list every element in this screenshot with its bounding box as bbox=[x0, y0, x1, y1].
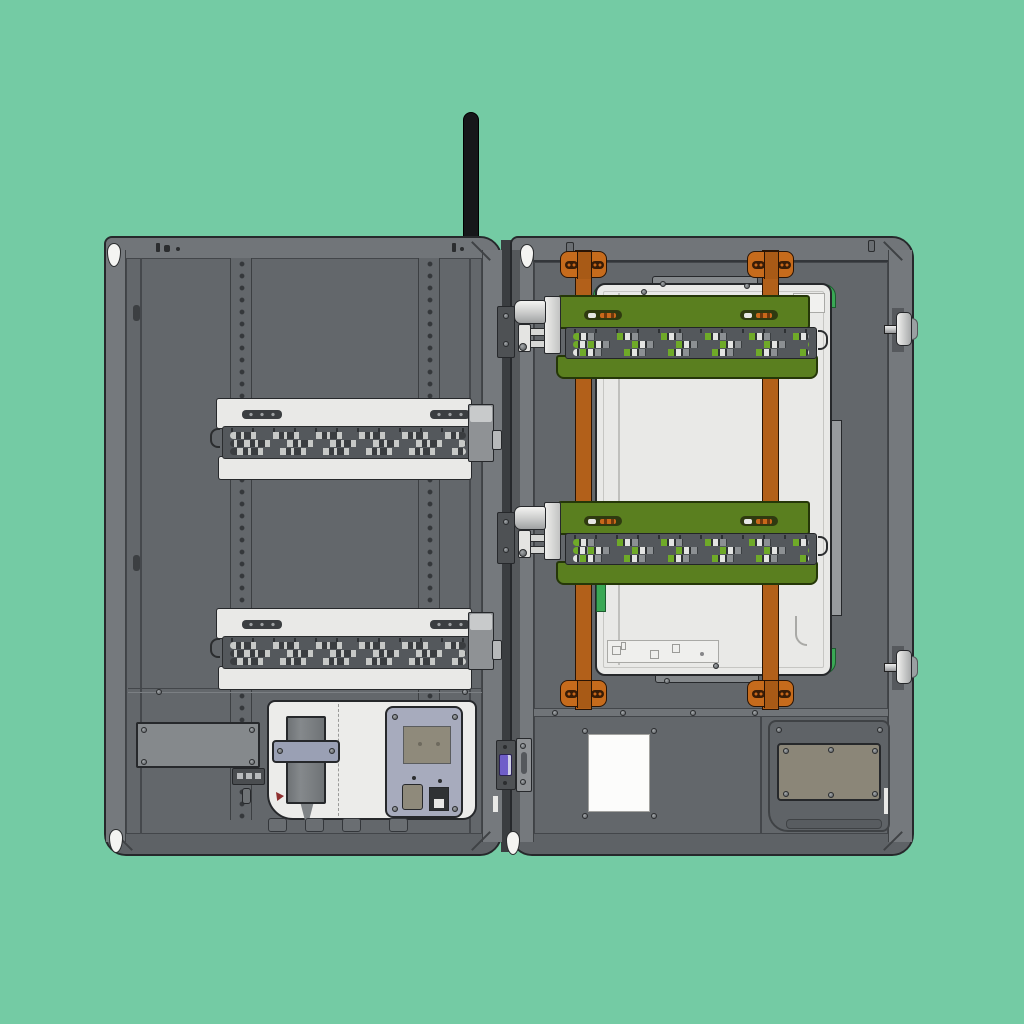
subpanel-seam bbox=[760, 717, 762, 833]
module-wiring-band bbox=[565, 533, 817, 565]
bracket-rail-cover bbox=[577, 252, 592, 279]
right-door-bottom-rail bbox=[512, 832, 912, 854]
panel-curve-line bbox=[795, 616, 807, 646]
screw bbox=[872, 791, 878, 797]
rail-mark-dot bbox=[176, 247, 180, 251]
screw bbox=[141, 727, 147, 733]
terminal-block-bottom-plate bbox=[218, 456, 472, 480]
block-end-stub bbox=[492, 640, 502, 660]
label-dot bbox=[418, 742, 422, 746]
screw bbox=[503, 341, 509, 347]
rail-bracket bbox=[560, 251, 607, 278]
screw bbox=[828, 747, 834, 753]
rail-bracket-outline bbox=[389, 818, 408, 832]
screw bbox=[392, 714, 398, 720]
latch-body bbox=[896, 650, 912, 684]
terminal-row bbox=[573, 547, 809, 554]
module-slot bbox=[740, 310, 778, 320]
terminal-row bbox=[573, 333, 809, 340]
terminal-row bbox=[573, 539, 809, 546]
rail-mark bbox=[156, 243, 160, 252]
screw bbox=[452, 806, 458, 812]
screw bbox=[156, 689, 162, 695]
keeper-slot bbox=[521, 752, 527, 774]
screw bbox=[752, 710, 758, 716]
rail-mark bbox=[164, 245, 170, 252]
screw bbox=[249, 759, 255, 765]
terminal-strip-pole bbox=[255, 773, 261, 779]
latch-arm-screw bbox=[519, 343, 527, 351]
mount-slot bbox=[430, 410, 470, 419]
latch-cylinder bbox=[514, 300, 546, 324]
rj45-inner bbox=[434, 799, 444, 808]
rail-bracket bbox=[560, 680, 607, 707]
pcb-feature bbox=[612, 646, 621, 655]
rail-bracket-outline bbox=[305, 818, 324, 832]
screw bbox=[520, 743, 526, 749]
latch-arm-screw bbox=[519, 549, 527, 557]
module-slot bbox=[584, 310, 622, 320]
pcb-feature bbox=[672, 644, 680, 653]
label-card bbox=[588, 734, 650, 812]
block-end-connector-cap bbox=[470, 614, 492, 630]
latch-bar bbox=[530, 340, 545, 348]
controller-port-a bbox=[402, 784, 423, 810]
screw bbox=[690, 710, 696, 716]
terminal-strip-pole bbox=[237, 773, 243, 779]
wire-hook bbox=[210, 428, 220, 448]
module-slot bbox=[584, 516, 622, 526]
rail-bracket-outline bbox=[268, 818, 287, 832]
rail-bracket bbox=[747, 251, 794, 278]
terminal-row bbox=[573, 349, 809, 356]
left-door-left-edge bbox=[106, 250, 126, 842]
terminal-strip-pole bbox=[246, 773, 252, 779]
bracket-slot bbox=[591, 261, 604, 269]
screw bbox=[620, 710, 626, 716]
bracket-rail-cover bbox=[764, 252, 779, 279]
rail-mark-dot bbox=[460, 247, 464, 251]
screw bbox=[503, 547, 509, 553]
screw bbox=[828, 792, 834, 798]
plate-dot bbox=[503, 781, 507, 785]
screw bbox=[503, 313, 509, 319]
rail-bracket-outline bbox=[342, 818, 361, 832]
screw bbox=[520, 779, 526, 785]
rail-bracket bbox=[747, 680, 794, 707]
screw bbox=[277, 748, 283, 754]
terminal-block-bottom-plate bbox=[218, 666, 472, 690]
edge-highlight bbox=[884, 788, 888, 814]
controller-label-area bbox=[403, 726, 451, 764]
screw bbox=[249, 727, 255, 733]
pcb-feature bbox=[621, 642, 626, 650]
latch-body bbox=[896, 312, 912, 346]
compartment-bottom-slot bbox=[786, 819, 882, 829]
bracket-slot bbox=[778, 690, 791, 698]
enclosure-illustration bbox=[0, 0, 1024, 1024]
terminal-row bbox=[573, 555, 809, 562]
block-end-stub bbox=[492, 430, 502, 450]
latch-bar bbox=[530, 534, 545, 542]
pcb-dot bbox=[700, 652, 704, 656]
screw bbox=[664, 678, 670, 684]
screw bbox=[452, 714, 458, 720]
bracket-slot bbox=[591, 690, 604, 698]
edge-slot bbox=[133, 555, 140, 571]
screw bbox=[329, 748, 335, 754]
screw bbox=[744, 283, 750, 289]
terminal-row bbox=[230, 658, 466, 665]
terminal-block-wiring-band bbox=[222, 426, 474, 459]
terminal-row bbox=[230, 432, 466, 439]
wire-hook bbox=[210, 638, 220, 658]
edge-slot bbox=[133, 305, 140, 321]
bracket-rail-cover bbox=[764, 681, 779, 708]
screw bbox=[660, 281, 666, 287]
bracket-slot bbox=[778, 261, 791, 269]
screw bbox=[582, 813, 588, 819]
mounting-pin bbox=[242, 788, 251, 804]
terminal-row bbox=[230, 642, 466, 649]
module-wiring-band bbox=[565, 327, 817, 359]
dsub-connector-purple bbox=[499, 754, 512, 776]
terminal-row bbox=[230, 650, 466, 657]
plate-dot bbox=[503, 745, 507, 749]
screw bbox=[651, 813, 657, 819]
panel-accent-strip bbox=[596, 582, 606, 612]
latch-end-block bbox=[544, 296, 561, 354]
screw bbox=[141, 759, 147, 765]
mount-slot bbox=[430, 620, 470, 629]
screw bbox=[783, 791, 789, 797]
screw bbox=[776, 727, 782, 733]
block-end-connector-cap bbox=[470, 406, 492, 422]
terminal-row bbox=[230, 440, 466, 447]
screw bbox=[872, 748, 878, 754]
mount-slot bbox=[242, 620, 282, 629]
terminal-row bbox=[230, 448, 466, 455]
latch-cylinder bbox=[514, 506, 546, 530]
left-door-bottom-rail bbox=[106, 832, 500, 854]
latch-bar bbox=[530, 328, 545, 336]
latch-bar bbox=[530, 546, 545, 554]
bracket-rail-cover bbox=[577, 681, 592, 708]
pcb-feature bbox=[650, 650, 659, 659]
screw bbox=[783, 748, 789, 754]
rail-mark bbox=[452, 243, 456, 252]
screw bbox=[877, 727, 883, 733]
edge-highlight bbox=[493, 796, 498, 812]
antenna-mast bbox=[463, 112, 479, 244]
rail-mark-slot bbox=[868, 240, 875, 252]
blank-cover-plate bbox=[136, 722, 260, 768]
screw bbox=[503, 519, 509, 525]
screw bbox=[552, 710, 558, 716]
screw bbox=[651, 728, 657, 734]
port-dot bbox=[438, 779, 442, 783]
screw bbox=[582, 728, 588, 734]
screw bbox=[392, 806, 398, 812]
screw bbox=[713, 663, 719, 669]
terminal-row bbox=[573, 341, 809, 348]
port-dot bbox=[412, 776, 416, 780]
mount-slot bbox=[242, 410, 282, 419]
module-slot bbox=[740, 516, 778, 526]
terminal-block-wiring-band bbox=[222, 636, 474, 669]
label-dot bbox=[436, 742, 440, 746]
latch-end-block bbox=[544, 502, 561, 560]
